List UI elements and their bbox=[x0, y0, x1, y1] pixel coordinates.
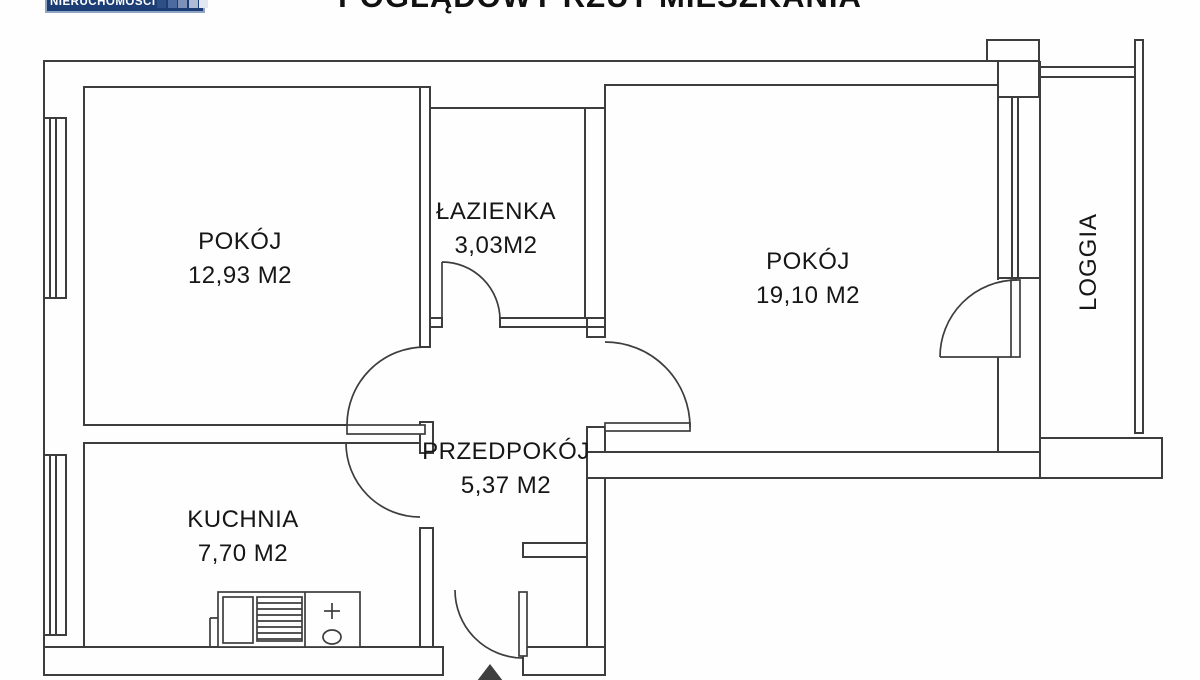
logo-square bbox=[178, 0, 187, 8]
wall-bands bbox=[44, 87, 1162, 675]
hallway-area: 5,37 M2 bbox=[422, 472, 590, 500]
bathroom-area: 3,03M2 bbox=[436, 232, 556, 260]
room1-area: 12,93 M2 bbox=[188, 262, 292, 290]
room1-window bbox=[44, 118, 66, 298]
hallway-label: PRZEDPOKÓJ 5,37 M2 bbox=[422, 438, 590, 500]
room1-name: POKÓJ bbox=[198, 228, 282, 255]
floorplan-canvas: POGLĄDOWY RZUT MIESZKANIA NIERUCHOMOŚCI … bbox=[0, 0, 1200, 680]
loggia-label: LOGGIA bbox=[1075, 213, 1103, 311]
room1-door bbox=[347, 347, 425, 434]
loggia-side-wall bbox=[1135, 40, 1143, 433]
logo-square bbox=[189, 0, 198, 8]
room2-door bbox=[605, 342, 690, 431]
balcony-door bbox=[940, 280, 1020, 357]
entrance-arrow-icon bbox=[477, 664, 503, 680]
hallway-name: PRZEDPOKÓJ bbox=[422, 438, 590, 465]
agency-logo-text: NIERUCHOMOŚCI bbox=[50, 0, 156, 8]
kitchen-fixtures bbox=[210, 592, 360, 647]
bathroom-label: ŁAZIENKA 3,03M2 bbox=[436, 198, 556, 260]
logo-square bbox=[199, 0, 208, 8]
loggia-railing bbox=[1040, 67, 1135, 77]
room2-area: 19,10 M2 bbox=[756, 282, 860, 310]
bathroom-name: ŁAZIENKA bbox=[436, 198, 556, 225]
counter-end bbox=[210, 618, 218, 647]
kitchen-door bbox=[346, 443, 420, 517]
room2-name: POKÓJ bbox=[766, 248, 850, 275]
agency-logo: NIERUCHOMOŚCI bbox=[45, 0, 205, 13]
entrance-door bbox=[455, 590, 527, 658]
kitchen-name: KUCHNIA bbox=[187, 506, 299, 533]
logo-square bbox=[168, 0, 177, 8]
logo-square bbox=[157, 0, 166, 8]
room2-label: POKÓJ 19,10 M2 bbox=[756, 248, 860, 310]
kitchen-window bbox=[44, 455, 66, 635]
kitchen-label: KUCHNIA 7,70 M2 bbox=[187, 506, 299, 568]
room2-window bbox=[998, 97, 1040, 278]
room1-label: POKÓJ 12,93 M2 bbox=[188, 228, 292, 290]
kitchen-area: 7,70 M2 bbox=[187, 540, 299, 568]
bathroom-door bbox=[442, 262, 500, 320]
floorplan-drawing bbox=[0, 0, 1200, 680]
